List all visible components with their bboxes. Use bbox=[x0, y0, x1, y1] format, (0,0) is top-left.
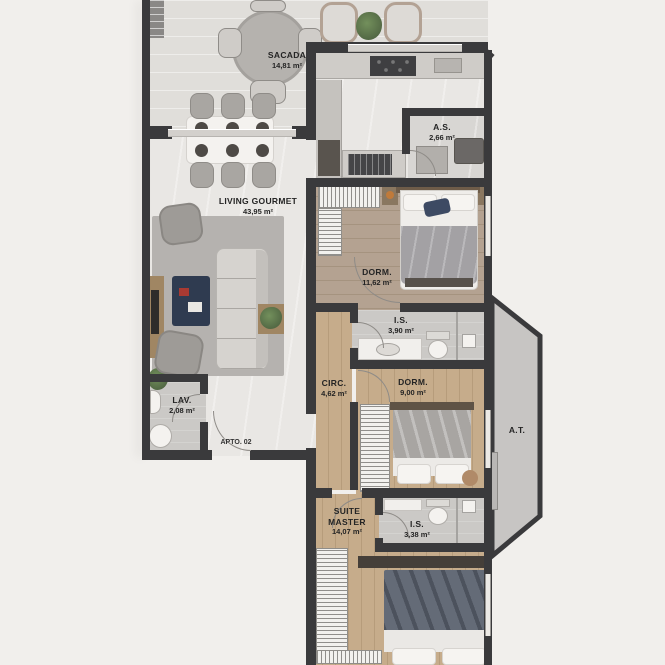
room-name: SACADA bbox=[268, 50, 306, 61]
pillow bbox=[442, 648, 486, 665]
bed-headboard bbox=[390, 402, 474, 410]
room-area: 2,66 m² bbox=[429, 133, 455, 142]
wall bbox=[306, 488, 332, 498]
room-name: LIVING GOURMET bbox=[219, 196, 297, 207]
wall bbox=[375, 543, 492, 552]
room-area: 3,90 m² bbox=[388, 326, 414, 335]
room-label-is2: I.S. 3,38 m² bbox=[404, 519, 430, 539]
plate bbox=[226, 144, 239, 157]
wall bbox=[306, 448, 316, 665]
kitchen-sink bbox=[434, 58, 462, 73]
sliding-door-glass bbox=[168, 129, 296, 137]
room-name: SUITE MASTER bbox=[320, 506, 374, 527]
floor-plan: SACADA 14,81 m² A.S. 2,66 m² LIVING GOUR… bbox=[0, 0, 665, 665]
plate bbox=[256, 144, 269, 157]
room-name: A.T. bbox=[509, 425, 525, 436]
wardrobe bbox=[316, 650, 382, 664]
room-label-is1: I.S. 3,90 m² bbox=[388, 315, 414, 335]
room-label-sacada: SACADA 14,81 m² bbox=[268, 50, 306, 70]
room-area: 2,08 m² bbox=[169, 406, 195, 415]
apartment-number-label: APTO. 02 bbox=[221, 439, 252, 448]
wall bbox=[375, 497, 383, 515]
lounge-chair bbox=[320, 2, 358, 44]
shower-divider bbox=[456, 497, 458, 543]
dining-chair bbox=[190, 93, 214, 119]
wardrobe bbox=[316, 548, 348, 652]
room-area: 14,07 m² bbox=[320, 527, 374, 536]
room-label-as: A.S. 2,66 m² bbox=[429, 122, 455, 142]
room-label-dorm1: DORM. 11,62 m² bbox=[362, 267, 392, 287]
toilet bbox=[426, 499, 450, 507]
blanket bbox=[393, 410, 471, 460]
room-label-suite: SUITE MASTER 14,07 m² bbox=[320, 506, 374, 537]
lamp bbox=[386, 191, 394, 199]
wall bbox=[306, 178, 316, 414]
balcony-chair bbox=[250, 0, 286, 12]
wall bbox=[350, 303, 358, 323]
room-label-dorm2: DORM. 9,00 m² bbox=[398, 377, 428, 397]
dining-chair bbox=[252, 93, 276, 119]
cooktop bbox=[370, 56, 416, 76]
window-glass bbox=[348, 44, 462, 52]
lounge-chair bbox=[384, 2, 422, 44]
room-name: CIRC. bbox=[321, 378, 347, 389]
wardrobe bbox=[318, 186, 380, 208]
room-area: 43,95 m² bbox=[219, 207, 297, 216]
wall bbox=[402, 108, 490, 116]
room-area: 14,81 m² bbox=[268, 61, 306, 70]
blanket bbox=[401, 226, 477, 284]
dining-chair bbox=[252, 162, 276, 188]
sideboard bbox=[358, 556, 484, 568]
balcony-chair bbox=[218, 28, 242, 58]
toilet-bowl bbox=[428, 507, 448, 525]
wall bbox=[142, 450, 212, 460]
room-area: 4,62 m² bbox=[321, 389, 347, 398]
room-label-at: A.T. bbox=[509, 425, 525, 436]
armchair bbox=[153, 328, 206, 379]
room-area: 9,00 m² bbox=[398, 388, 428, 397]
room-label-living: LIVING GOURMET 43,95 m² bbox=[219, 196, 297, 216]
wall bbox=[306, 42, 316, 140]
plate bbox=[195, 144, 208, 157]
room-name: DORM. bbox=[362, 267, 392, 278]
room-area: 11,62 m² bbox=[362, 278, 392, 287]
shower-control bbox=[462, 334, 476, 348]
toilet-bowl bbox=[428, 340, 448, 359]
dining-chair bbox=[221, 162, 245, 188]
round-table bbox=[232, 10, 308, 86]
decor-book bbox=[188, 302, 202, 312]
window bbox=[485, 196, 491, 256]
wall bbox=[142, 374, 208, 382]
toilet bbox=[426, 331, 450, 340]
tv bbox=[151, 290, 159, 334]
wall bbox=[350, 402, 358, 490]
bed-runner bbox=[405, 278, 473, 287]
coffee-table bbox=[172, 276, 210, 326]
wall bbox=[484, 50, 492, 665]
sink bbox=[150, 390, 161, 414]
shower-divider bbox=[456, 312, 458, 360]
dining-chair bbox=[221, 93, 245, 119]
window bbox=[485, 574, 491, 636]
wall bbox=[142, 0, 150, 458]
wall bbox=[400, 303, 492, 312]
room-name: LAV. bbox=[169, 395, 195, 406]
room-name: A.S. bbox=[429, 122, 455, 133]
room-name: I.S. bbox=[404, 519, 430, 530]
pouf bbox=[462, 470, 478, 486]
armchair bbox=[157, 201, 204, 246]
wardrobe bbox=[360, 404, 390, 492]
shower-control bbox=[462, 500, 476, 513]
pillow bbox=[392, 648, 436, 665]
island-stove bbox=[348, 154, 392, 175]
room-label-lav: LAV. 2,08 m² bbox=[169, 395, 195, 415]
washing-machine bbox=[454, 138, 484, 164]
blanket bbox=[384, 570, 486, 634]
wall bbox=[200, 374, 208, 394]
dining-chair bbox=[190, 162, 214, 188]
fridge bbox=[318, 140, 340, 176]
decor-red bbox=[179, 288, 189, 296]
wall bbox=[306, 178, 492, 187]
toilet-bowl bbox=[149, 424, 172, 448]
wall bbox=[350, 360, 492, 369]
room-name: DORM. bbox=[398, 377, 428, 388]
wardrobe bbox=[318, 208, 342, 256]
room-name: I.S. bbox=[388, 315, 414, 326]
window bbox=[485, 410, 491, 468]
vanity bbox=[384, 499, 422, 511]
room-label-circ: CIRC. 4,62 m² bbox=[321, 378, 347, 398]
wall bbox=[316, 303, 354, 312]
wall bbox=[250, 450, 308, 460]
hall-floor bbox=[316, 310, 352, 490]
pillow bbox=[397, 464, 431, 484]
wall bbox=[402, 108, 410, 154]
room-area: 3,38 m² bbox=[404, 530, 430, 539]
